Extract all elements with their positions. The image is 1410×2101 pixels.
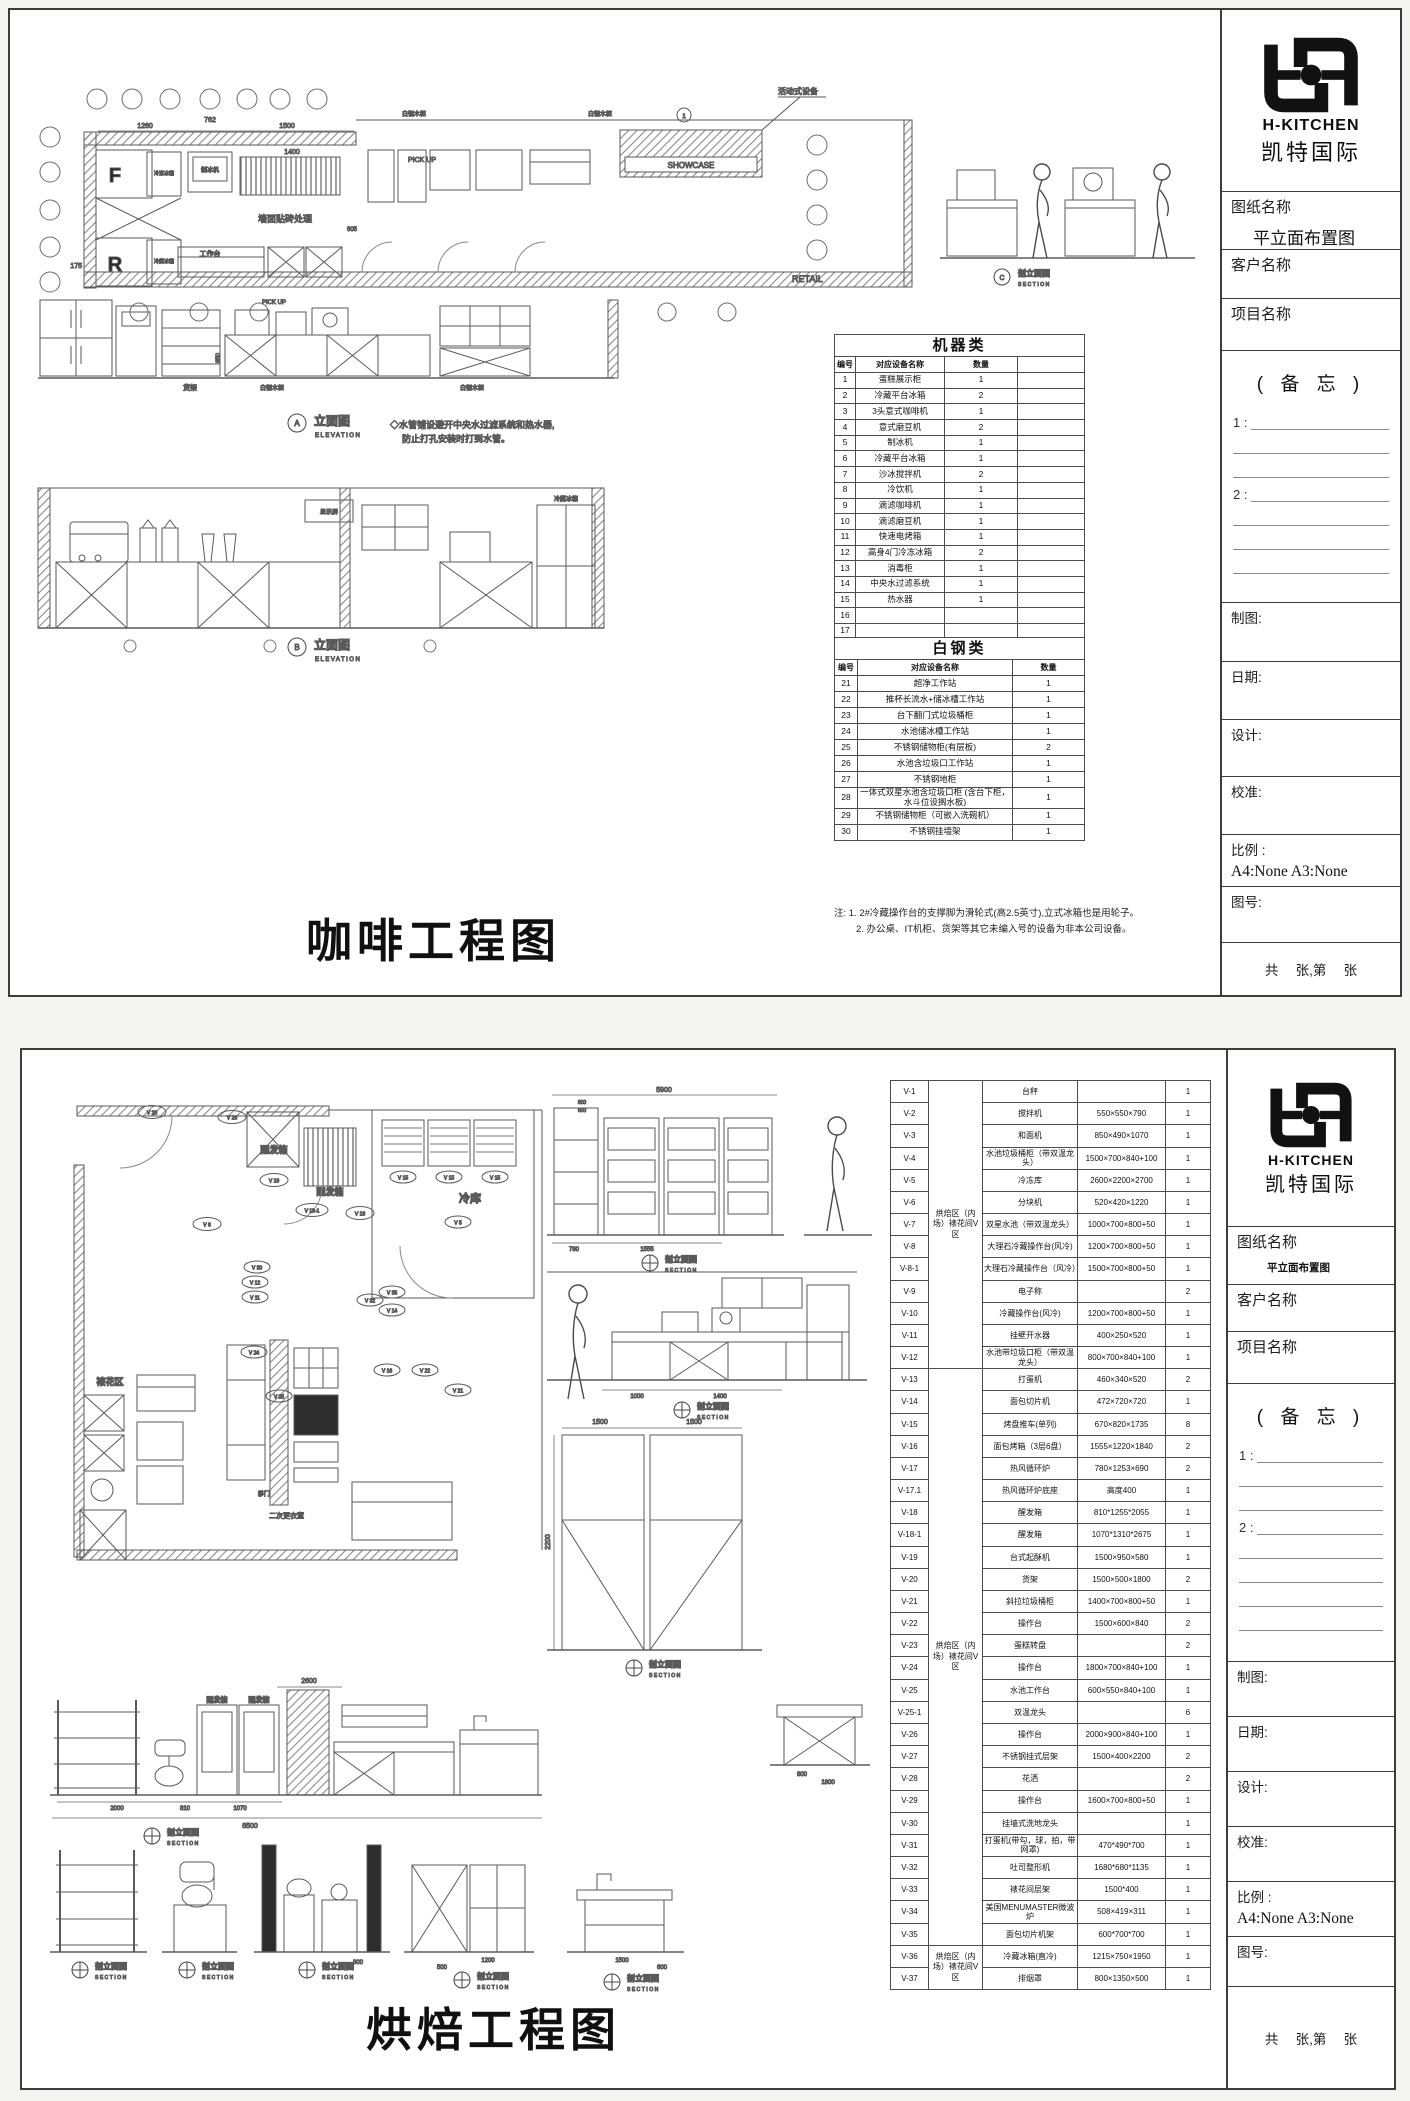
marker-label: V 16: [382, 1369, 393, 1375]
equip-qty-cell: 1: [1166, 1923, 1211, 1945]
equip-name-cell: 水池工作台: [983, 1679, 1078, 1701]
page-canvas: { "brand": { "name": "H-KITCHEN", "cn": …: [0, 0, 1410, 2101]
titleblock-coffee: H-KITCHEN 凯特国际 图纸名称 平立面布置图 客户名称 项目名称 ( 备…: [1220, 10, 1400, 995]
memo-item-1: 1 :: [1239, 1448, 1257, 1463]
coffee-drawings: 1260 762 1500 1400 605 175 F R 冷冻冰箱 冷藏冰箱…: [10, 10, 1400, 995]
equip-id-cell: V-22: [891, 1613, 929, 1635]
equip-size-cell: 1800×700×840+100: [1078, 1657, 1166, 1679]
field-client: 客户名称: [1228, 1285, 1394, 1332]
table-cell: 15: [835, 592, 856, 608]
table-cell: 29: [835, 808, 858, 824]
check-label: 校准:: [1237, 1831, 1385, 1851]
marker-label: V 32: [365, 1299, 376, 1305]
oven-rack-elevation: 5900 800 600 780 1555 剖立面图 SECTION: [547, 1087, 872, 1274]
dim-label: 780: [569, 1247, 580, 1253]
table-cell: 30: [835, 824, 858, 840]
equip-name-cell: 美国MENUMASTER微波炉: [983, 1901, 1078, 1923]
marker-label: V 30: [252, 1266, 263, 1272]
sheet-title-baking: 烘焙工程图: [366, 1994, 621, 2060]
field-design: 设计:: [1222, 720, 1400, 777]
equip-qty-cell: 8: [1166, 1413, 1211, 1435]
check-label: 校准:: [1231, 781, 1391, 801]
caption-elevation: 立面图: [314, 637, 350, 652]
marker-label: V 12: [250, 1281, 261, 1287]
equip-name-cell: 大理石冷藏操作台（风冷）: [983, 1258, 1078, 1280]
equip-qty-cell: 1: [1166, 1480, 1211, 1502]
equip-qty-cell: 1: [1166, 1236, 1211, 1258]
equip-size-cell: [1078, 1081, 1166, 1103]
caption-section-en: SECTION: [627, 1987, 660, 1993]
plan-label-fridge: R: [108, 254, 123, 276]
equip-id-cell: V-20: [891, 1568, 929, 1590]
field-check: 校准:: [1222, 777, 1400, 835]
caption-section-en: SECTION: [95, 1975, 128, 1981]
table-cell: 意式磨豆机: [856, 420, 945, 436]
table-cell: 冷藏平台冰箱: [856, 388, 945, 404]
table-cell: 24: [835, 724, 858, 740]
water-note-line1: ◇水管铺设避开中央水过滤系统和热水器,: [390, 419, 555, 430]
plan-label-walltile: 墙面贴砖处理: [258, 213, 312, 224]
table-cell: [1018, 388, 1085, 404]
table-cell: 1: [1013, 808, 1085, 824]
equip-size-cell: 1200×700×800+50: [1078, 1302, 1166, 1324]
column-header: 对应设备名称: [858, 660, 1013, 676]
table-row: 30不锈钢挂墙架1: [835, 824, 1085, 840]
table-cell: 1: [1013, 788, 1085, 809]
table-cell: 中央水过滤系统: [856, 576, 945, 592]
table-cell: [1018, 482, 1085, 498]
equip-qty-cell: 1: [1166, 1546, 1211, 1568]
elev-label-shelf: 货架: [183, 383, 197, 392]
dim-label: 2000: [110, 1806, 124, 1812]
section-letter: C: [999, 275, 1004, 282]
equip-name-cell: 面包切片机: [983, 1391, 1078, 1413]
table-header-row: 编号对应设备名称数量: [835, 660, 1085, 676]
equip-id-cell: V-30: [891, 1812, 929, 1834]
equip-qty-cell: 1: [1166, 1169, 1211, 1191]
equip-qty-cell: 1: [1166, 1502, 1211, 1524]
equip-size-cell: 600×550×840+100: [1078, 1679, 1166, 1701]
table-title-row: 白钢类: [835, 638, 1085, 660]
equip-name-cell: 台式起酥机: [983, 1546, 1078, 1568]
equip-name-cell: 斜拉垃圾桶柜: [983, 1590, 1078, 1612]
equip-id-cell: V-26: [891, 1723, 929, 1745]
bakery-small-sections: 剖立面图 SECTION 剖立面图 SECTION 剖立面图 SECTION 8…: [50, 1845, 684, 1993]
equip-size-cell: [1078, 1280, 1166, 1302]
marker-label: V 5: [454, 1221, 462, 1227]
equip-size-cell: 520×420×1220: [1078, 1191, 1166, 1213]
memo-item-1: 1 :: [1233, 415, 1251, 430]
showcase-tag: 1: [682, 114, 686, 120]
dim-label: 800: [353, 1960, 364, 1966]
table-row: V-36烘焙区（内场）裱花间V区冷藏冰箱(直冷)1215×750×19501: [891, 1945, 1211, 1967]
table-row: 14中央水过滤系统1: [835, 576, 1085, 592]
table-cell: 1: [1013, 676, 1085, 692]
table-cell: 3头意式咖啡机: [856, 404, 945, 420]
table-title: 机器类: [835, 335, 1085, 357]
equip-size-cell: 400×250×520: [1078, 1324, 1166, 1346]
h-kitchen-logo-icon: [1251, 35, 1371, 115]
equip-size-cell: 1500×500×1800: [1078, 1568, 1166, 1590]
equip-id-cell: V-16: [891, 1435, 929, 1457]
table-cell: 高身4门冷冻冰箱: [856, 545, 945, 561]
marker-label: V 20: [147, 1111, 158, 1117]
dim-label: 5900: [656, 1087, 672, 1094]
equip-id-cell: V-28: [891, 1768, 929, 1790]
table-row: 15热水器1: [835, 592, 1085, 608]
table-cell: 1: [945, 498, 1018, 514]
table-row: 27不锈钢地柜1: [835, 772, 1085, 788]
equip-name-cell: 操作台: [983, 1790, 1078, 1812]
table-cell: [1018, 467, 1085, 483]
marker-label: V 22: [420, 1369, 431, 1375]
marker-label: V 18-1: [305, 1209, 320, 1215]
drawing-name-label: 图纸名称: [1237, 1231, 1385, 1252]
equip-id-cell: V-27: [891, 1746, 929, 1768]
equip-id-cell: V-33: [891, 1879, 929, 1901]
brand-name-cn: 凯特国际: [1265, 1168, 1357, 1197]
equip-name-cell: 醒发箱: [983, 1502, 1078, 1524]
table-cell: [1018, 435, 1085, 451]
caption-section: 剖立面图: [627, 1973, 659, 1983]
table-cell: 8: [835, 482, 856, 498]
table-cell: 2: [835, 388, 856, 404]
equip-name-cell: 电子称: [983, 1280, 1078, 1302]
table-cell: 制冰机: [856, 435, 945, 451]
table-row: 29不锈钢储物柜（可嵌入洗碗机）1: [835, 808, 1085, 824]
equip-name-cell: 和面机: [983, 1125, 1078, 1147]
table-cell: 消毒柜: [856, 561, 945, 577]
table-cell: 14: [835, 576, 856, 592]
table-cell: 13: [835, 561, 856, 577]
table-cell: 1: [945, 529, 1018, 545]
sheet-notes: 注: 1. 2#冷藏操作台的支撑脚为滑轮式(高2.5英寸),立式冰箱也是用轮子。…: [834, 906, 1226, 938]
equip-size-cell: 1500×700×840+100: [1078, 1147, 1166, 1169]
table-cell: 1: [945, 592, 1018, 608]
table-cell: 一体式双星水池含垃圾口柜 (含台下柜，水斗位设搁水板): [858, 788, 1013, 809]
column-header: 数量: [945, 357, 1018, 373]
coffee-elevation-a: 货架 PICK UP 白钢木柜 白钢木柜 850 A 立面图 ELEVATION…: [38, 300, 618, 444]
equip-size-cell: 472×720×720: [1078, 1391, 1166, 1413]
equip-name-cell: 水池垃圾桶柜（带双温龙头）: [983, 1147, 1078, 1169]
equip-name-cell: 双星水池（带双温龙头）: [983, 1214, 1078, 1236]
equip-size-cell: 1555×1220×1840: [1078, 1435, 1166, 1457]
table-cell: [945, 608, 1018, 624]
table-cell: 1: [945, 576, 1018, 592]
equip-qty-cell: 1: [1166, 1347, 1211, 1369]
memo-line: [1233, 549, 1389, 574]
memo-title: ( 备 忘 ): [1237, 1402, 1385, 1429]
equip-id-cell: V-13: [891, 1369, 929, 1391]
equip-qty-cell: 2: [1166, 1280, 1211, 1302]
table-row: 33头意式咖啡机1: [835, 404, 1085, 420]
dim-label: 1555: [640, 1247, 654, 1253]
dim-label: 1400: [713, 1394, 727, 1400]
table-cell: 7: [835, 467, 856, 483]
equip-qty-cell: 1: [1166, 1879, 1211, 1901]
bakery-equipment-table: V-1烘焙区（内场）裱花间V区台秤1V-2搅拌机550×550×7901V-3和…: [890, 1080, 1211, 1990]
counter-elevation: 1000 1400 剖立面图 SECTION: [547, 1272, 867, 1421]
caption-section-en: SECTION: [202, 1975, 235, 1981]
equip-id-cell: V-24: [891, 1657, 929, 1679]
note-line: 注: 1. 2#冷藏操作台的支撑脚为滑轮式(高2.5英寸),立式冰箱也是用轮子。: [834, 906, 1226, 922]
marker-label: V 15: [490, 1176, 501, 1182]
equip-qty-cell: 1: [1166, 1679, 1211, 1701]
field-draft: 制图:: [1222, 603, 1400, 662]
caption-section-en: SECTION: [322, 1975, 355, 1981]
table-cell: 25: [835, 740, 858, 756]
sheet-coffee: 1260 762 1500 1400 605 175 F R 冷冻冰箱 冷藏冰箱…: [8, 8, 1402, 997]
equip-qty-cell: 1: [1166, 1967, 1211, 1989]
equip-id-cell: V-29: [891, 1790, 929, 1812]
pages-label: 共 张,第 张: [1265, 959, 1357, 979]
equip-id-cell: V-25-1: [891, 1701, 929, 1723]
plan-label-cabinet: 白钢木柜: [588, 110, 612, 118]
marker-label: V 11: [250, 1296, 260, 1302]
equip-size-cell: 1680*680*1135: [1078, 1857, 1166, 1879]
dim-label: 605: [347, 227, 358, 233]
caption-section-en: SECTION: [477, 1985, 510, 1991]
equip-qty-cell: 1: [1166, 1214, 1211, 1236]
equip-id-cell: V-6: [891, 1191, 929, 1213]
equip-size-cell: 850×490×1070: [1078, 1125, 1166, 1147]
caption-section: 剖立面图: [697, 1401, 729, 1411]
plan-label-icemaker: 制冰机: [201, 166, 219, 174]
plan-label-showcase: SHOWCASE: [668, 161, 715, 170]
equip-name-cell: 蛋糕转盘: [983, 1635, 1078, 1657]
table-cell: 22: [835, 692, 858, 708]
field-client: 客户名称: [1222, 250, 1400, 299]
equip-id-cell: V-25: [891, 1679, 929, 1701]
memo-line: [1251, 405, 1389, 430]
equip-name-cell: 打蛋机: [983, 1369, 1078, 1391]
column-header: 数量: [1013, 660, 1085, 676]
table-row: 10滴滤磨豆机1: [835, 514, 1085, 530]
table-cell: 1: [945, 373, 1018, 389]
table-cell: 2: [945, 467, 1018, 483]
marker-label: V 35: [387, 1291, 398, 1297]
equip-size-cell: 1500*400: [1078, 1879, 1166, 1901]
brand-name: H-KITCHEN: [1263, 117, 1360, 135]
dim-label: 600: [578, 1108, 587, 1114]
equip-id-cell: V-11: [891, 1324, 929, 1346]
equip-name-cell: 冷藏操作台(风冷): [983, 1302, 1078, 1324]
table-cell: [1018, 514, 1085, 530]
equip-name-cell: 操作台: [983, 1657, 1078, 1679]
equip-qty-cell: 1: [1166, 1790, 1211, 1812]
table-cell: [856, 608, 945, 624]
equip-id-cell: V-7: [891, 1214, 929, 1236]
plan-label-retail: RETAIL: [792, 274, 823, 284]
group-cell: 烘焙区（内场）裱花间V区: [929, 1081, 983, 1369]
dim-label: 600: [657, 1965, 668, 1971]
caption-section: 剖立面图: [167, 1827, 199, 1837]
equip-size-cell: [1078, 1701, 1166, 1723]
equip-qty-cell: 1: [1166, 1103, 1211, 1125]
table-cell: [1018, 373, 1085, 389]
equip-size-cell: 600*700*700: [1078, 1923, 1166, 1945]
equip-id-cell: V-35: [891, 1923, 929, 1945]
equip-name-cell: 不锈钢挂式层架: [983, 1746, 1078, 1768]
elevation-letter: B: [294, 643, 299, 652]
dim-label: 850: [216, 352, 222, 363]
table-row: 4意式磨豆机2: [835, 420, 1085, 436]
table-cell: 超净工作站: [858, 676, 1013, 692]
equip-size-cell: 1215×750×1950: [1078, 1945, 1166, 1967]
field-drawing-name: 图纸名称 平立面布置图: [1228, 1227, 1394, 1285]
elev-label-fridge: 冷藏冰箱: [554, 495, 578, 503]
equip-qty-cell: 1: [1166, 1125, 1211, 1147]
table-cell: 4: [835, 420, 856, 436]
table-cell: 10: [835, 514, 856, 530]
table-cell: 2: [945, 545, 1018, 561]
equip-id-cell: V-9: [891, 1280, 929, 1302]
equip-size-cell: 1500×600×840: [1078, 1613, 1166, 1635]
equip-id-cell: V-34: [891, 1901, 929, 1923]
equip-id-cell: V-23: [891, 1635, 929, 1657]
table-cell: 台下翻门式垃圾桶柜: [858, 708, 1013, 724]
equip-name-cell: 冷藏冰箱(直冷): [983, 1945, 1078, 1967]
field-draft: 制图:: [1228, 1662, 1394, 1717]
table-cell: [1018, 561, 1085, 577]
plan-label-worktable: 工作台: [200, 249, 221, 258]
equip-name-cell: 花洒: [983, 1768, 1078, 1790]
equip-id-cell: V-36: [891, 1945, 929, 1967]
equip-size-cell: 1070*1310*2675: [1078, 1524, 1166, 1546]
equip-id-cell: V-10: [891, 1302, 929, 1324]
plan-label-slidingdoor: 移门: [258, 1490, 270, 1498]
table-cell: 不锈钢储物柜（可嵌入洗碗机）: [858, 808, 1013, 824]
table-row: 16: [835, 608, 1085, 624]
marker-label: V 18: [355, 1212, 366, 1218]
equip-qty-cell: 1: [1166, 1302, 1211, 1324]
equip-id-cell: V-8-1: [891, 1258, 929, 1280]
equip-qty-cell: 1: [1166, 1857, 1211, 1879]
field-figno: 图号:: [1222, 887, 1400, 943]
equip-id-cell: V-18-1: [891, 1524, 929, 1546]
figno-label: 图号:: [1237, 1941, 1385, 1961]
elev-label-pickup: PICK UP: [262, 300, 286, 306]
dim-label: 1400: [284, 149, 300, 156]
memo-item-2: 2 :: [1239, 1520, 1257, 1535]
plan-label-movable: 活动式设备: [778, 86, 818, 96]
table-cell: 1: [1013, 772, 1085, 788]
equip-qty-cell: 6: [1166, 1701, 1211, 1723]
table-row: 28一体式双星水池含垃圾口柜 (含台下柜，水斗位设搁水板)1: [835, 788, 1085, 809]
table-cell: 28: [835, 788, 858, 809]
memo-line: [1239, 1558, 1383, 1583]
field-project: 项目名称: [1222, 299, 1400, 351]
sheet-title-coffee: 咖啡工程图: [306, 905, 561, 971]
equip-name-cell: 分块机: [983, 1191, 1078, 1213]
caption-section-en: SECTION: [167, 1841, 200, 1847]
h-kitchen-logo-icon: [1259, 1080, 1363, 1150]
table-cell: 5: [835, 435, 856, 451]
equip-name-cell: 台秤: [983, 1081, 1078, 1103]
caption-section: 剖立面图: [202, 1961, 234, 1971]
table-row: 23台下翻门式垃圾桶柜1: [835, 708, 1085, 724]
table-cell: 热水器: [856, 592, 945, 608]
memo-item-2: 2 :: [1233, 487, 1251, 502]
table-cell: [1018, 451, 1085, 467]
equip-qty-cell: 2: [1166, 1369, 1211, 1391]
equip-size-cell: [1078, 1768, 1166, 1790]
table-row: 22推杯长流水+储冰槽工作站1: [835, 692, 1085, 708]
equip-id-cell: V-4: [891, 1147, 929, 1169]
equip-name-cell: 面包切片机架: [983, 1923, 1078, 1945]
marker-label: V 24: [249, 1351, 260, 1357]
table-cell: 推杯长流水+储冰槽工作站: [858, 692, 1013, 708]
equip-size-cell: 1500×400×2200: [1078, 1746, 1166, 1768]
table-cell: 9: [835, 498, 856, 514]
equip-size-cell: 800×700×840+100: [1078, 1347, 1166, 1369]
equip-id-cell: V-2: [891, 1103, 929, 1125]
table-row: 5制冰机1: [835, 435, 1085, 451]
bakery-floor-plan: 冷库 醒发箱 醒发箱 裱花区 移门 二次更衣室: [74, 1106, 542, 1561]
plan-label-deco: 裱花区: [96, 1376, 123, 1387]
table-cell: 11: [835, 529, 856, 545]
table-header-row: 编号对应设备名称数量: [835, 357, 1085, 373]
caption-section: 剖立面图: [322, 1961, 354, 1971]
dim-label: 1500: [615, 1958, 629, 1964]
elev-label-cabinet: 白钢木柜: [260, 384, 284, 392]
drawing-name-value: 平立面布置图: [1253, 224, 1391, 249]
equip-name-cell: 挂壁开水器: [983, 1324, 1078, 1346]
table-cell: [1018, 545, 1085, 561]
scale-value: A4:None A3:None: [1237, 1910, 1385, 1928]
field-drawing-name: 图纸名称 平立面布置图: [1222, 192, 1400, 250]
steel-table: 白钢类编号对应设备名称数量21超净工作站122推杯长流水+储冰槽工作站123台下…: [834, 637, 1085, 841]
table-cell: 23: [835, 708, 858, 724]
caption-section-en: SECTION: [697, 1415, 730, 1421]
equip-qty-cell: 1: [1166, 1081, 1211, 1103]
equip-qty-cell: 1: [1166, 1901, 1211, 1923]
table-row: 13消毒柜1: [835, 561, 1085, 577]
table-cell: 1: [1013, 692, 1085, 708]
table-cell: 滴滤磨豆机: [856, 514, 945, 530]
dim-label: 8500: [242, 1823, 258, 1830]
equip-name-cell: 操作台: [983, 1723, 1078, 1745]
dim-label: 810: [180, 1806, 191, 1812]
equip-qty-cell: 1: [1166, 1590, 1211, 1612]
plan-label-pickup: PICK UP: [408, 157, 436, 164]
marker-label: V 26: [227, 1116, 238, 1122]
equip-size-cell: 高度400: [1078, 1480, 1166, 1502]
table-cell: 不锈钢挂墙架: [858, 824, 1013, 840]
equip-size-cell: 460×340×520: [1078, 1369, 1166, 1391]
equip-qty-cell: 2: [1166, 1568, 1211, 1590]
elevation-letter: A: [294, 419, 300, 428]
equip-name-cell: 双温龙头: [983, 1701, 1078, 1723]
table-row: 11快速电烤箱1: [835, 529, 1085, 545]
table-row: V-1烘焙区（内场）裱花间V区台秤1: [891, 1081, 1211, 1103]
equip-name-cell: 冷冻库: [983, 1169, 1078, 1191]
equip-name-cell: 吐司整形机: [983, 1857, 1078, 1879]
equip-size-cell: 670×820×1735: [1078, 1413, 1166, 1435]
equip-name-cell: 热风循环炉底座: [983, 1480, 1078, 1502]
scale-label: 比例 :: [1237, 1886, 1385, 1906]
equip-qty-cell: 1: [1166, 1391, 1211, 1413]
marker-label: V 15: [398, 1176, 409, 1182]
table-cell: 1: [1013, 724, 1085, 740]
equip-qty-cell: 2: [1166, 1768, 1211, 1790]
dim-label: 800: [578, 1100, 587, 1106]
table-cell: 12: [835, 545, 856, 561]
marker-label: V 6: [203, 1223, 211, 1229]
group-cell: 烘焙区（内场）裱花间V区: [929, 1369, 983, 1945]
date-label: 日期:: [1237, 1721, 1385, 1741]
dim-label: 175: [70, 263, 82, 270]
